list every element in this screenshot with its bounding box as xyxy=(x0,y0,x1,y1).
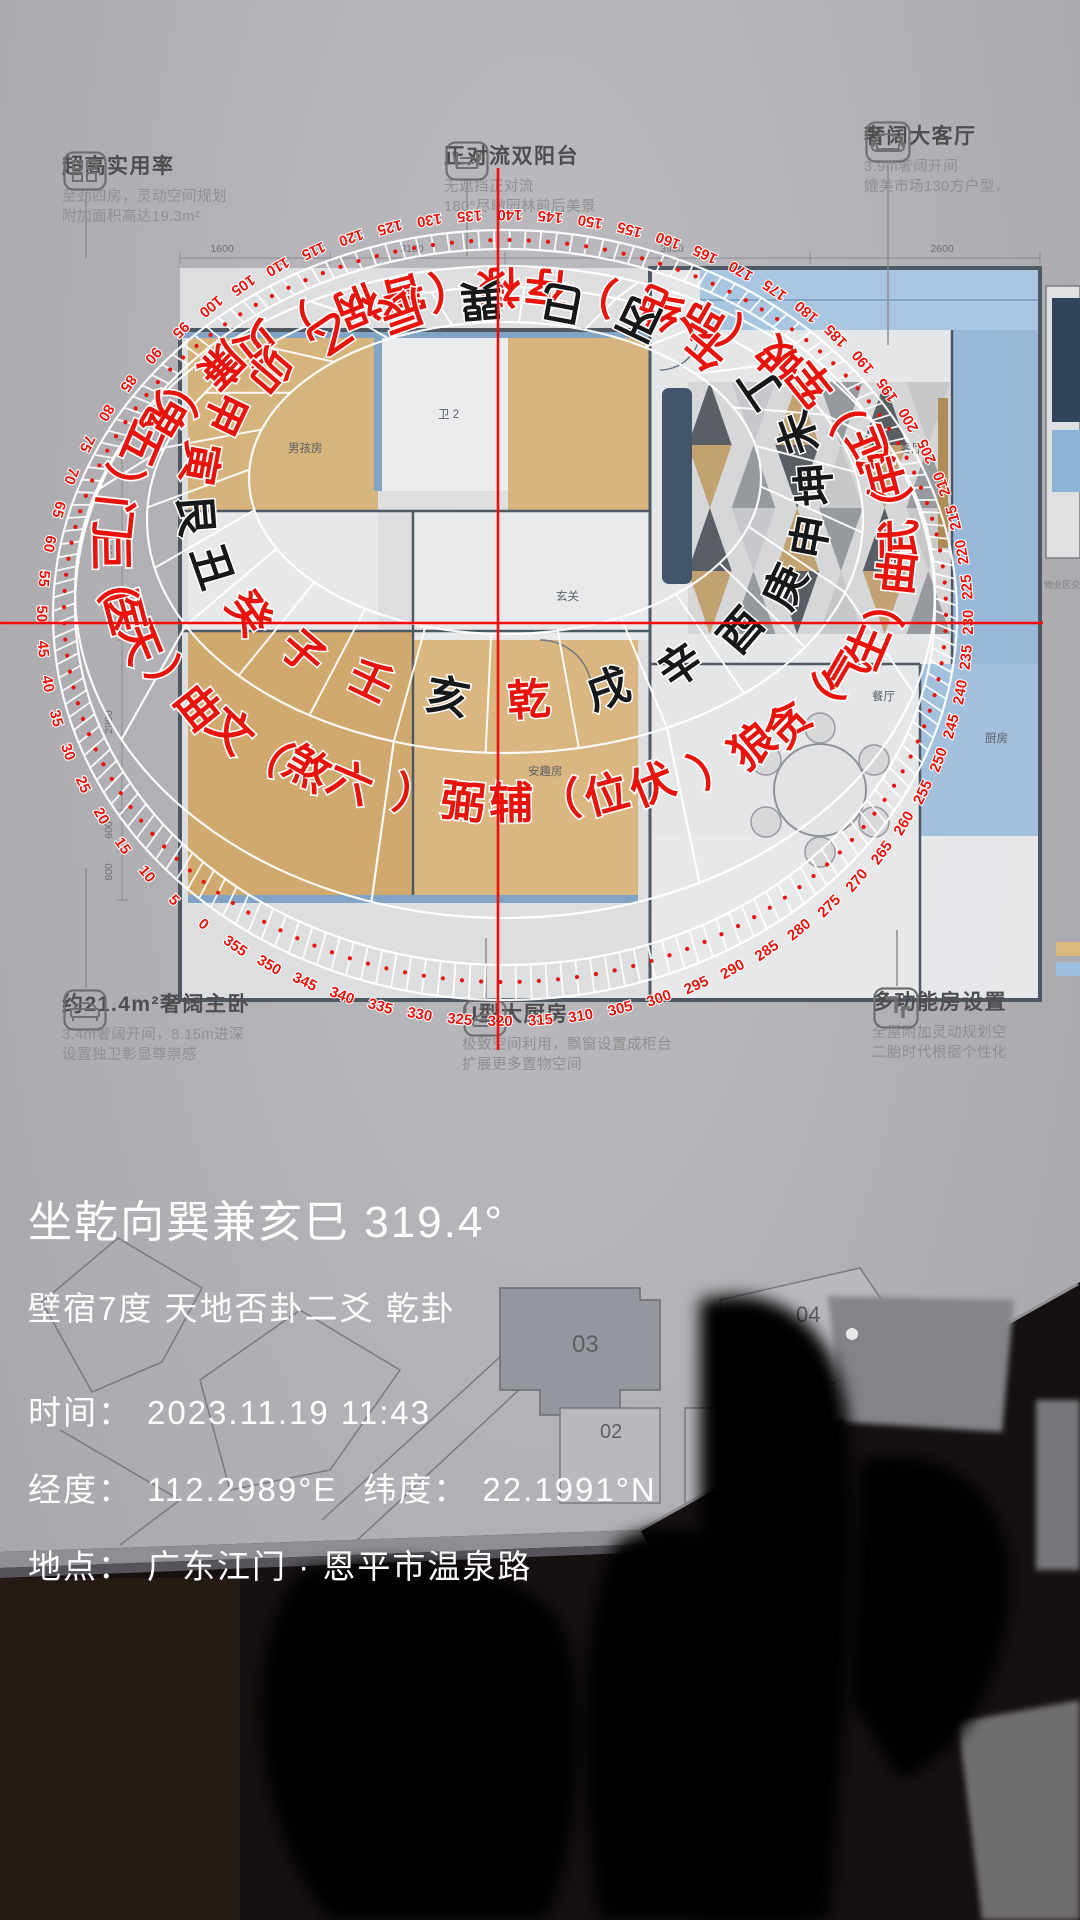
compass-degree-label: 260 xyxy=(890,808,917,838)
compass-degree-label: 110 xyxy=(263,253,292,280)
compass-degree-label: 55 xyxy=(34,569,53,587)
compass-degree-label: 275 xyxy=(814,891,844,921)
compass-degree-label: 235 xyxy=(957,644,976,671)
location-value: 广东江门 · 恩平市温泉路 xyxy=(147,1548,532,1585)
compass-star-char: 弼 xyxy=(439,776,488,829)
compass-mountain-char: 亥 xyxy=(422,670,473,725)
time-row: 时间：2023.11.19 11:43 xyxy=(28,1386,657,1434)
compass-degree-label: 310 xyxy=(567,1006,594,1027)
compass-degree-label: 305 xyxy=(606,997,634,1020)
compass-degree-label: 5 xyxy=(165,891,183,909)
compass-degree-label: 30 xyxy=(57,741,79,762)
time-label: 时间： xyxy=(28,1394,133,1431)
sitting-facing-heading: 坐乾向巽兼亥巳 319.4° xyxy=(28,1186,657,1250)
compass-degree-label: 135 xyxy=(456,206,482,225)
compass-degree-label: 65 xyxy=(48,499,69,520)
compass-degree-label: 40 xyxy=(38,674,57,693)
compass-degree-label: 265 xyxy=(868,838,896,868)
luopan-compass-overlay: 0510152025303540455055606570758085909510… xyxy=(0,0,1080,1920)
compass-degree-label: 0 xyxy=(195,915,212,933)
latitude-label: 纬度： xyxy=(363,1471,468,1508)
time-value: 2023.11.19 11:43 xyxy=(147,1394,431,1431)
compass-degree-label: 340 xyxy=(327,983,356,1008)
compass-degree-label: 15 xyxy=(111,834,134,857)
compass-degree-label: 160 xyxy=(653,228,682,253)
compass-degree-label: 10 xyxy=(135,862,159,886)
compass-degree-label: 225 xyxy=(958,574,977,600)
compass-degree-label: 300 xyxy=(644,986,673,1010)
compass-mountain-char: 申 xyxy=(784,511,839,562)
compass-degree-label: 250 xyxy=(927,745,952,774)
compass-star-char: （ xyxy=(534,774,584,829)
compass-degree-label: 345 xyxy=(290,969,320,995)
compass-degree-label: 60 xyxy=(40,534,60,554)
compass-degree-label: 120 xyxy=(336,225,365,249)
compass-degree-label: 350 xyxy=(254,952,284,979)
compass-degree-label: 330 xyxy=(406,1004,434,1025)
compass-degree-label: 45 xyxy=(34,640,52,658)
compass-degree-label: 165 xyxy=(690,241,720,267)
compass-degree-label: 295 xyxy=(682,973,712,999)
compass-degree-label: 130 xyxy=(416,209,443,230)
compass-degree-label: 325 xyxy=(446,1010,473,1029)
compass-degree-label: 140 xyxy=(497,206,522,223)
compass-degree-label: 50 xyxy=(33,605,50,622)
compass-degree-label: 320 xyxy=(488,1013,513,1030)
compass-mountain-char: 艮 xyxy=(169,492,220,540)
compass-degree-label: 355 xyxy=(220,932,250,960)
compass-degree-label: 20 xyxy=(90,805,113,828)
compass-degree-label: 180 xyxy=(792,297,822,326)
compass-degree-label: 95 xyxy=(169,318,193,342)
compass-mountain-char: 辛 xyxy=(650,634,713,698)
compass-degree-label: 285 xyxy=(752,937,782,965)
compass-degree-label: 255 xyxy=(910,777,936,807)
compass-degree-label: 190 xyxy=(849,347,878,377)
compass-mountain-char: 乾 xyxy=(506,675,553,726)
compass-degree-label: 315 xyxy=(527,1011,553,1030)
compass-degree-label: 70 xyxy=(60,465,82,487)
compass-mountain-char: 寅 xyxy=(171,437,226,488)
compass-degree-label: 195 xyxy=(873,375,901,405)
compass-degree-label: 200 xyxy=(895,405,922,435)
compass-degree-label: 270 xyxy=(842,866,871,896)
location-row: 地点：广东江门 · 恩平市温泉路 xyxy=(28,1540,657,1588)
compass-mountain-char: 坤 xyxy=(790,461,841,508)
compass-mountain-char: 巳 xyxy=(537,275,588,330)
compass-degree-label: 185 xyxy=(821,321,851,351)
longitude-value: 112.2989°E xyxy=(147,1471,337,1508)
measurement-readout: 坐乾向巽兼亥巳 319.4° 壁宿7度 天地否卦二爻 乾卦 时间：2023.11… xyxy=(28,1186,657,1617)
compass-degree-label: 125 xyxy=(375,216,403,239)
compass-mountain-char: 壬 xyxy=(341,651,401,713)
compass-mountain-char: 戌 xyxy=(580,660,637,720)
compass-mountain-char: 酉 xyxy=(709,599,773,663)
location-label: 地点： xyxy=(28,1548,133,1585)
compass-star-char: 辅 xyxy=(489,779,534,829)
latitude-value: 22.1991°N xyxy=(482,1471,656,1508)
compass-ring-line xyxy=(53,230,957,1000)
compass-degree-label: 155 xyxy=(615,218,644,241)
hexagram-detail: 壁宿7度 天地否卦二爻 乾卦 xyxy=(28,1282,657,1330)
compass-degree-label: 150 xyxy=(576,211,604,232)
compass-degree-label: 115 xyxy=(299,238,328,263)
compass-degree-label: 145 xyxy=(537,207,564,226)
compass-star-char: ） xyxy=(388,769,442,827)
compass-ring-line xyxy=(249,322,761,634)
compass-mountain-char: 子 xyxy=(270,621,334,685)
compass-degree-label: 245 xyxy=(940,712,963,741)
compass-degree-label: 280 xyxy=(784,915,814,944)
ar-luopan-camera-screen: 160031003900260018002900600800 物业区交付标准 0… xyxy=(0,0,1080,1920)
compass-degree-label: 220 xyxy=(952,538,973,565)
compass-degree-label: 335 xyxy=(366,995,395,1018)
compass-degree-label: 25 xyxy=(72,774,94,796)
compass-degree-label: 290 xyxy=(717,956,747,983)
longitude-label: 经度： xyxy=(28,1471,133,1508)
coordinates-row: 经度：112.2989°E纬度：22.1991°N xyxy=(28,1463,657,1511)
compass-degree-label: 240 xyxy=(950,678,971,706)
compass-degree-label: 35 xyxy=(46,708,67,728)
